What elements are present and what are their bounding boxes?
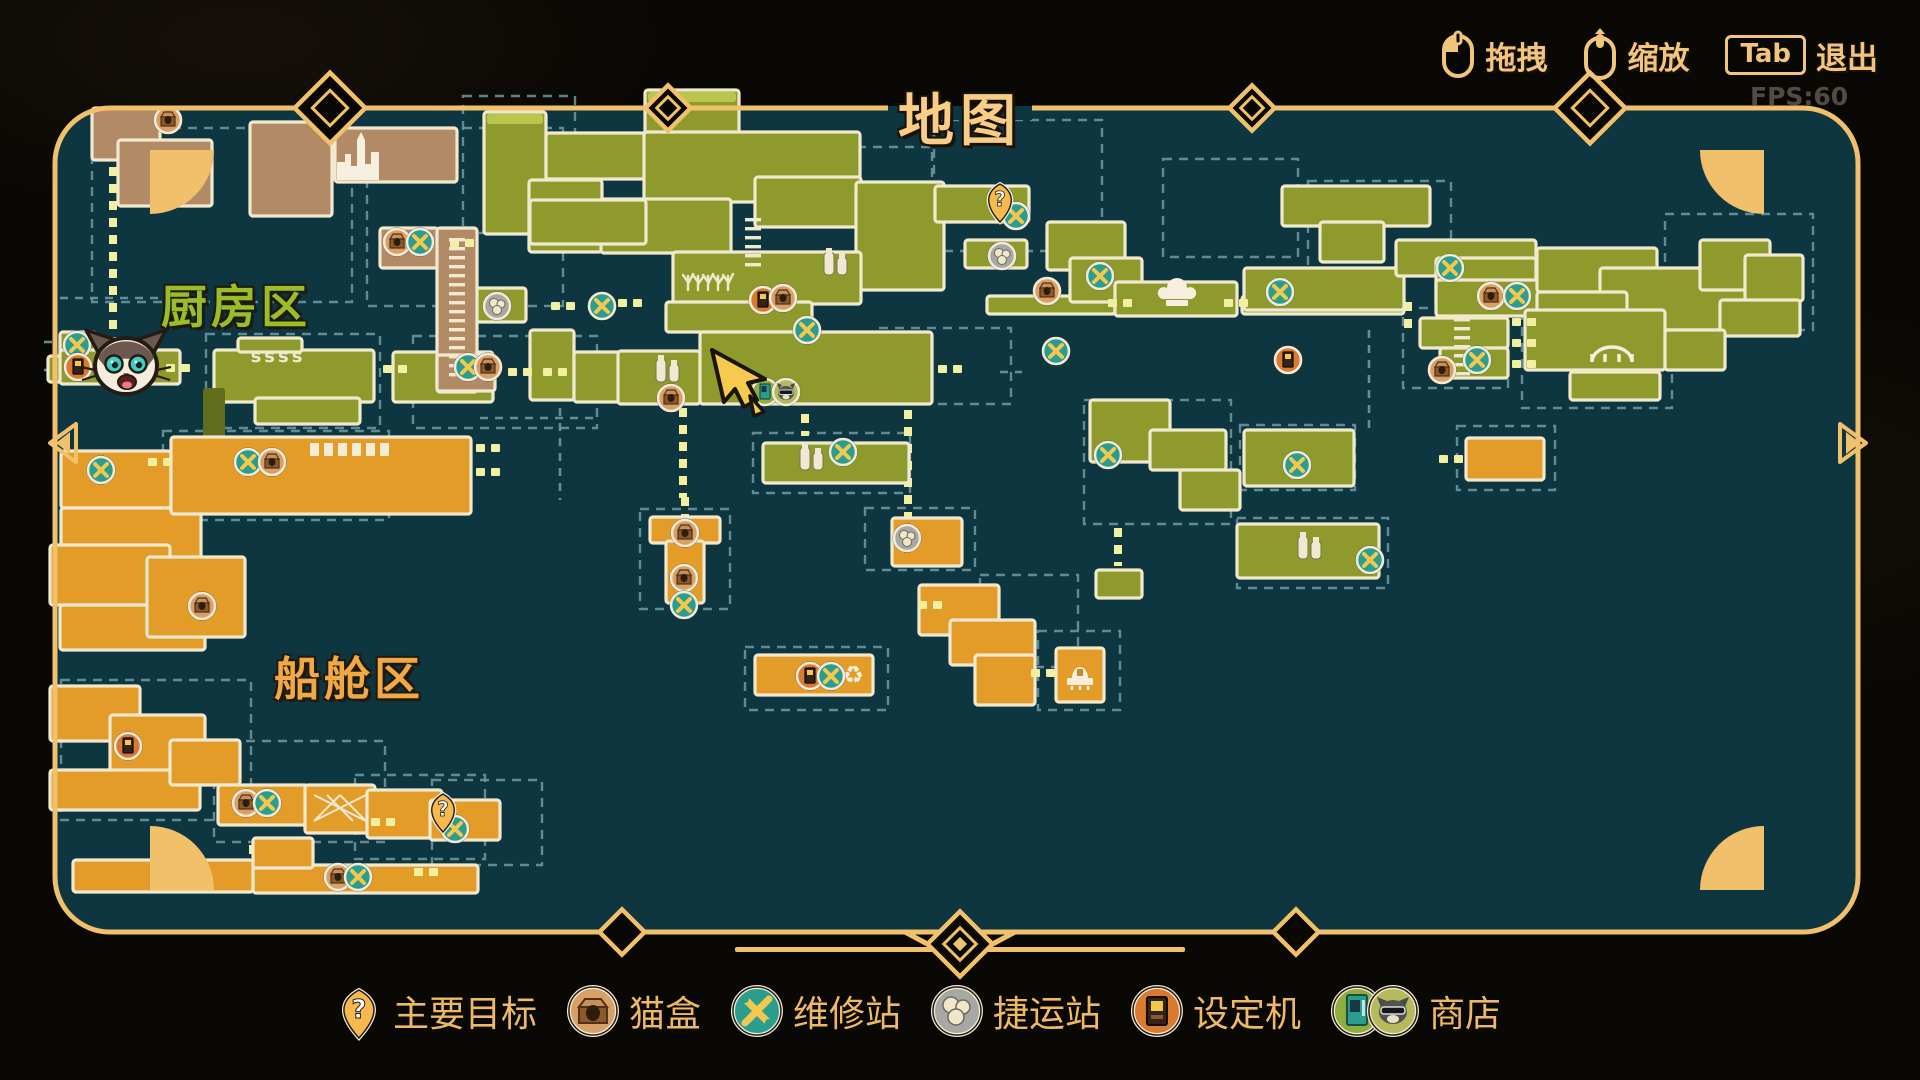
marker-catbox [188, 592, 217, 621]
door-marks [1031, 669, 1055, 677]
zoom-hint-label: 缩放 [1627, 33, 1689, 78]
door-marks [508, 368, 532, 376]
marker-repair [1503, 282, 1532, 311]
marker-repair [1283, 451, 1312, 480]
marker-catbox [258, 448, 287, 477]
map-room [574, 352, 622, 402]
legend-transit-label: 捷运站 [993, 985, 1101, 1037]
drag-hint-label: 拖拽 [1485, 33, 1547, 78]
map-room [1096, 570, 1142, 598]
map-room [1180, 470, 1240, 510]
region-label-cabin: 船舱区 [274, 643, 424, 709]
marker-repair [1356, 546, 1385, 575]
exit-hint-label: 退出 [1816, 33, 1878, 78]
map-room [171, 437, 471, 514]
marker-catbox [1477, 282, 1506, 311]
map-room [1466, 438, 1544, 480]
map-room [530, 330, 574, 400]
legend-arcade-label: 设定机 [1193, 985, 1301, 1037]
legend-transit: 捷运站 [931, 985, 1101, 1037]
marker-repair [793, 316, 822, 345]
catbox-icon [567, 985, 619, 1037]
map-canvas[interactable]: ssss♻?? [0, 0, 1920, 1080]
marker-repair [817, 662, 846, 691]
icon-steam: ssss [251, 346, 306, 367]
legend-repair-label: 维修站 [793, 985, 901, 1037]
marker-repair [670, 591, 699, 620]
legend-catbox: 猫盒 [567, 985, 701, 1037]
tab-keycap: Tab [1725, 35, 1806, 75]
exit-hint: Tab 退出 [1725, 33, 1878, 78]
map-room [856, 182, 944, 290]
repair-icon [731, 985, 783, 1037]
control-hints: 拖拽 缩放 Tab 退出 [1441, 28, 1878, 82]
marker-arcade [114, 732, 143, 761]
marker-repair [588, 292, 617, 321]
marker-catbox [657, 384, 686, 413]
arcade-machine-icon [1131, 985, 1183, 1037]
map-room [530, 200, 646, 244]
page-title: 地图 [898, 76, 1022, 157]
drag-hint: 拖拽 [1441, 30, 1547, 80]
map-room [1525, 310, 1665, 370]
unexplored-box [1163, 159, 1298, 257]
svg-text:?: ? [994, 187, 1006, 211]
marker-repair [1042, 337, 1071, 366]
map-room [1570, 372, 1660, 400]
map-room [1665, 330, 1725, 370]
map-room [975, 655, 1035, 705]
marker-catbox [1033, 277, 1062, 306]
marker-catbox [670, 564, 699, 593]
zoom-hint: 缩放 [1583, 28, 1689, 82]
marker-transit [483, 292, 512, 321]
svg-text:?: ? [437, 797, 449, 821]
region-label-kitchen: 厨房区 [161, 271, 311, 337]
map-legend: ? 主要目标 猫盒 维修站 [335, 980, 1501, 1042]
map-screen: ssss♻?? 地图 拖拽 缩放 Tab 退出 FPS:60 [0, 0, 1920, 1080]
icon-recycle: ♻ [842, 661, 864, 689]
shop-icon [1331, 985, 1419, 1037]
marker-catbox [1428, 356, 1457, 385]
svg-text:ssss: ssss [251, 346, 306, 367]
map-room [1745, 255, 1803, 301]
objective-pin-icon: ? [335, 980, 383, 1042]
mouse-zoom-icon [1583, 28, 1617, 82]
map-room [1150, 430, 1226, 470]
legend-catbox-label: 猫盒 [629, 985, 701, 1037]
marker-repair [406, 228, 435, 257]
marker-repair [1266, 278, 1295, 307]
marker-repair [829, 438, 858, 467]
svg-text:♻: ♻ [842, 661, 864, 689]
marker-catbox [671, 519, 700, 548]
svg-text:?: ? [351, 995, 366, 1025]
marker-repair [344, 863, 373, 892]
legend-objective-label: 主要目标 [393, 985, 537, 1037]
legend-arcade: 设定机 [1131, 985, 1301, 1037]
fps-counter: FPS:60 [1750, 82, 1848, 111]
marker-transit [893, 524, 922, 553]
door-marks [618, 299, 642, 307]
legend-shop: 商店 [1331, 985, 1501, 1037]
door-marks [1439, 455, 1463, 463]
marker-repair [253, 789, 282, 818]
map-room [1320, 222, 1384, 262]
marker-repair [1094, 441, 1123, 470]
legend-objective: ? 主要目标 [335, 980, 537, 1042]
door-marks [476, 468, 500, 476]
marker-catbox [769, 284, 798, 313]
marker-arcade [1274, 346, 1303, 375]
map-room [1282, 186, 1430, 226]
map-room [1420, 318, 1508, 348]
marker-repair [1436, 254, 1465, 283]
mouse-drag-icon [1441, 30, 1475, 80]
marker-repair [1086, 262, 1115, 291]
door-marks [938, 365, 962, 373]
transit-icon [931, 985, 983, 1037]
map-room [755, 177, 861, 227]
map-room [1720, 300, 1800, 336]
map-room [255, 398, 360, 424]
marker-transit [988, 242, 1017, 271]
legend-shop-label: 商店 [1429, 985, 1501, 1037]
door-marks [476, 444, 500, 452]
marker-catbox [474, 353, 503, 382]
map-room [170, 740, 240, 785]
marker-repair [1463, 346, 1492, 375]
map-room [253, 838, 313, 868]
legend-repair: 维修站 [731, 985, 901, 1037]
marker-repair [87, 456, 116, 485]
